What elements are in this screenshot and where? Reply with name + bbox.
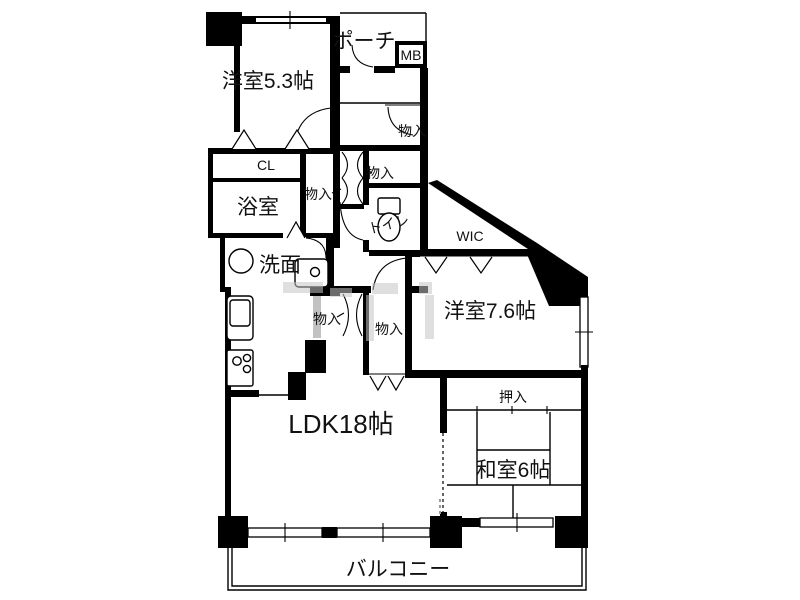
pillar-bottom-left: [218, 516, 248, 548]
room-label-storage-entry: 物入: [398, 123, 426, 139]
room-labels: 洋室5.3帖 ポーチ MB 物入 物入 物入 CL 浴室 洗面 トイレ WIC …: [222, 30, 550, 581]
room-label-balcony: バルコニー: [346, 558, 451, 581]
room-label-bathroom: 浴室: [237, 196, 279, 219]
room-label-mb: MB: [401, 47, 422, 63]
pillar-bottom-right: [555, 516, 588, 548]
toilet-tank: [378, 198, 400, 214]
cl-folding-door: [232, 130, 256, 149]
wic-folding-door: [425, 257, 447, 273]
washroom-door-arc: [306, 238, 326, 258]
room-label-wic: WIC: [456, 228, 483, 244]
balcony-windows: [248, 499, 553, 542]
window-top: [256, 18, 326, 22]
washing-machine: [229, 249, 253, 273]
corner-block-ne: [526, 243, 588, 306]
room-label-cl: CL: [257, 157, 275, 173]
pillar-top-left: [206, 12, 242, 46]
room-label-ldk: LDK18帖: [288, 409, 394, 439]
room-label-porch: ポーチ: [333, 30, 396, 53]
floor-plan-page: 洋室5.3帖 ポーチ MB 物入 物入 物入 CL 浴室 洗面 トイレ WIC …: [0, 0, 800, 600]
room-label-bedroom76: 洋室7.6帖: [444, 300, 536, 323]
room-label-bedroom53: 洋室5.3帖: [222, 70, 314, 93]
room-label-washitsu: 和室6帖: [476, 459, 551, 482]
pillar-bottom-center: [430, 516, 462, 548]
room-label-oshiire: 押入: [499, 389, 527, 405]
room-label-storage-ldk-large: 物入: [375, 321, 403, 337]
room-label-washroom: 洗面: [259, 254, 301, 277]
room-label-storage-hall-lower: 物入: [304, 186, 332, 202]
room-label-storage-ldk-small: 物入: [313, 311, 341, 327]
room-label-storage-hall-upper: 物入: [366, 165, 394, 181]
floor-plan-drawing: 洋室5.3帖 ポーチ MB 物入 物入 物入 CL 浴室 洗面 トイレ WIC …: [0, 0, 800, 600]
